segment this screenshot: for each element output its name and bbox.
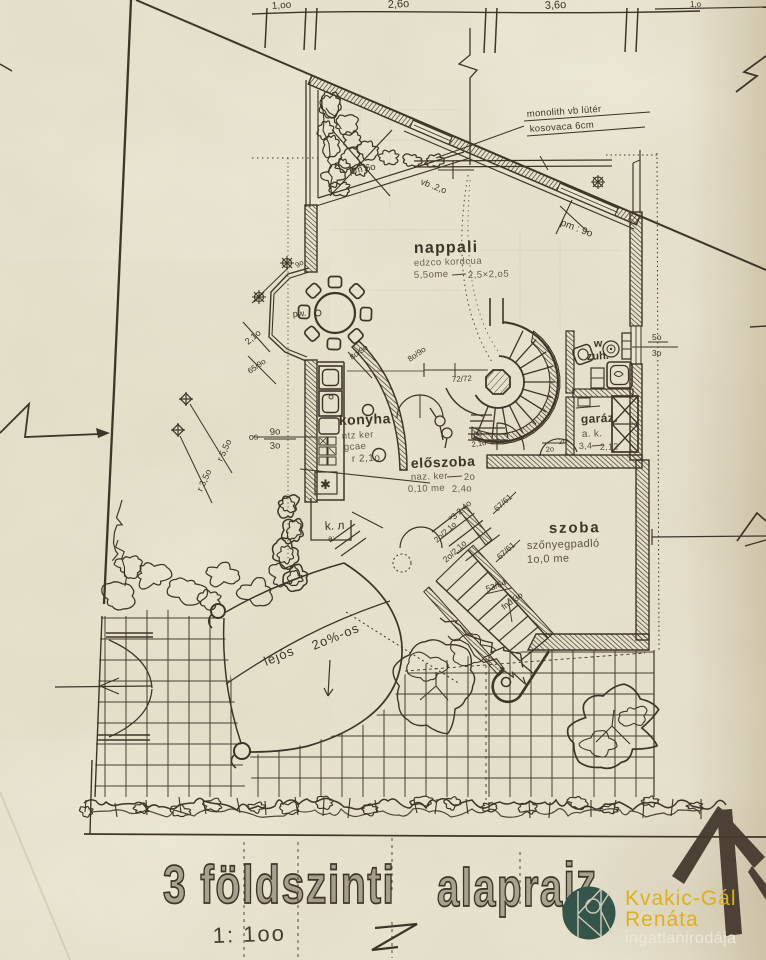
svg-text:Renáta: Renáta [625,908,699,931]
svg-text:ntz ker: ntz ker [342,429,375,442]
svg-text:r 2,1o: r 2,1o [352,453,381,465]
svg-text:1: 1oo: 1: 1oo [212,920,286,948]
svg-text:2o: 2o [545,444,554,454]
svg-text:w: w [593,338,604,351]
svg-text:os: os [248,431,259,442]
svg-text:pw.: pw. [292,308,306,319]
svg-text:szőnyegpadló: szőnyegpadló [527,537,600,552]
svg-text:szoba: szoba [549,519,601,537]
svg-text:garáz.: garáz. [581,411,619,426]
svg-text:k. л: k. л [324,518,344,533]
svg-text:naz. ker: naz. ker [411,471,448,483]
svg-text:2o: 2o [464,472,476,483]
svg-text:1o,0 me: 1o,0 me [527,553,570,566]
svg-text:3o: 3o [652,348,662,358]
svg-text:2,5×2,o5: 2,5×2,o5 [468,269,510,281]
svg-text:✱: ✱ [320,477,331,492]
svg-text:1,o: 1,o [690,0,702,9]
svg-text:nappali: nappali [414,239,479,257]
svg-text:konyha: konyha [339,410,392,428]
svg-text:ingatlanirodája: ingatlanirodája [625,930,737,947]
svg-text:2o: 2o [558,436,567,446]
svg-text:2,4o: 2,4o [452,483,472,495]
svg-text:gcae: gcae [344,441,367,453]
svg-text:72/72: 72/72 [452,374,473,384]
svg-text:1,oo: 1,oo [271,0,292,12]
svg-text:Kvakic-Gál: Kvakic-Gál [625,887,737,910]
svg-text:3,6o: 3,6o [545,0,567,12]
svg-text:a. k.: a. k. [582,428,603,440]
svg-text:2,6o: 2,6o [388,0,410,11]
svg-text:0,10 me: 0,10 me [408,483,446,495]
svg-text:2,12: 2,12 [600,441,619,452]
svg-text:3o: 3o [269,440,280,452]
svg-text:3,4: 3,4 [579,441,593,451]
svg-text:előszoba: előszoba [411,453,476,471]
svg-text:3 földszinti: 3 földszinti [163,856,395,916]
svg-text:5o: 5o [652,332,662,342]
svg-text:9o: 9o [269,426,280,438]
svg-text:5,5ome: 5,5ome [414,269,449,281]
svg-text:8o: 8o [473,429,483,439]
